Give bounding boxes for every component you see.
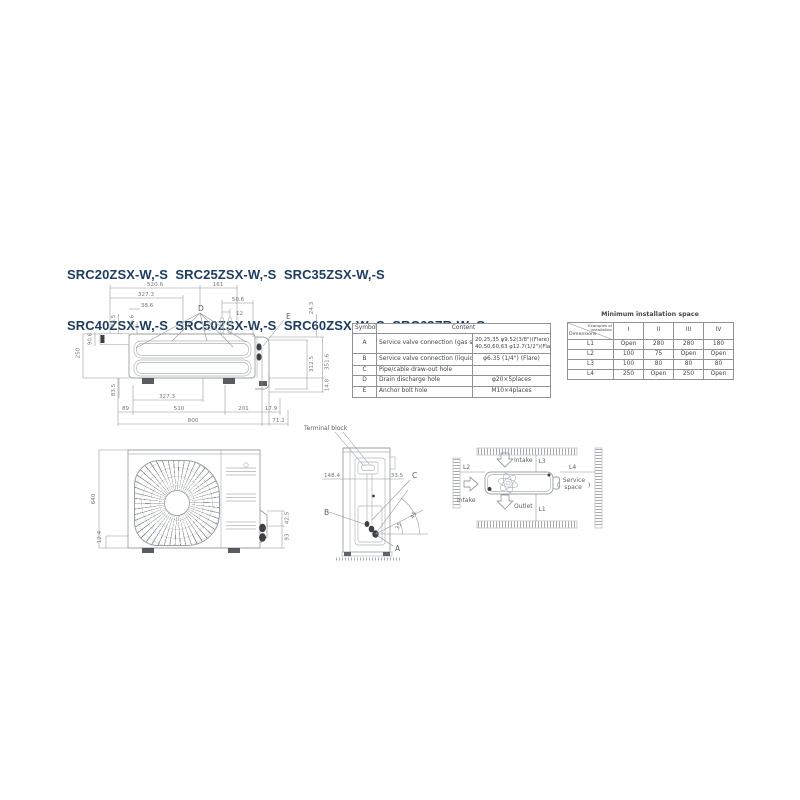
symbol-content-table: Symbol Content A Service valve connectio…: [352, 323, 551, 398]
dim-800: 800: [188, 418, 199, 424]
dim-640: 640: [91, 493, 97, 504]
dim-42-5: 42.5: [285, 511, 291, 524]
row-label: L1: [568, 340, 614, 350]
intake-left-arrow-icon: [464, 477, 478, 491]
value-cell: [473, 366, 551, 376]
symbol-cell: A: [353, 334, 377, 354]
symbol-header: Symbol: [353, 324, 377, 334]
symbol-cell: D: [353, 376, 377, 387]
spec-sheet-page: SRC20ZSX-W,-S SRC25ZSX-W,-S SRC35ZSX-W,-…: [0, 0, 800, 800]
dim-312-5: 312.5: [309, 356, 315, 372]
table-row: L3 100 80 80 80: [568, 360, 734, 370]
table-row: B Service valve connection (liquid side)…: [353, 354, 551, 366]
dim-33-5: 33.5: [391, 473, 404, 479]
content-header: Content: [377, 324, 551, 334]
dim-148-4: 148.4: [324, 473, 340, 479]
intake-top-label: Intake: [514, 457, 533, 464]
service-space-paren-close: ): [588, 482, 590, 489]
dim-351-6: 351.6: [325, 354, 331, 370]
value-cell: 80: [644, 360, 674, 370]
table-row: D Drain discharge hole φ20×5places: [353, 376, 551, 387]
intake-left-label: Intake: [457, 497, 476, 504]
value-cell: Open: [614, 340, 644, 350]
dim-250: 250: [76, 347, 82, 358]
value-cell: 80: [674, 360, 704, 370]
dim-angle-outer: 45: [410, 511, 419, 521]
row-label: L2: [568, 350, 614, 360]
drain-hole-label-d: D: [198, 304, 204, 313]
dim-161: 161: [213, 282, 224, 288]
value-cell: 80: [704, 360, 734, 370]
l3-label: L3: [539, 458, 546, 465]
value-cell: φ6.35 (1/4") (Flare): [473, 354, 551, 366]
dim-14-8: 14.8: [325, 378, 331, 391]
table-row: A Service valve connection (gas side) 20…: [353, 334, 551, 354]
column-header: IV: [704, 323, 734, 340]
dim-35-6: 35.6: [130, 314, 136, 327]
desc-cell: Service valve connection (liquid side): [377, 354, 473, 366]
installation-space-table: Examples of installation Dimensions I II…: [567, 322, 734, 380]
symbol-cell: B: [353, 354, 377, 366]
dim-12: 12: [236, 311, 243, 317]
dim-201: 201: [238, 406, 249, 412]
l1-label: L1: [539, 506, 546, 513]
table-row: L2 100 75 Open Open: [568, 350, 734, 360]
value-cell: 280: [644, 340, 674, 350]
value-cell: 100: [614, 350, 644, 360]
dim-89: 89: [122, 406, 130, 412]
column-header: I: [614, 323, 644, 340]
value-line2: 40,50,60,63 φ12.7(1/2")(Flare): [475, 344, 548, 350]
desc-cell: Drain discharge hole: [377, 376, 473, 387]
corner-dimensions-label: Dimensions: [569, 332, 596, 338]
value-cell: 250: [674, 370, 704, 380]
value-cell: Open: [644, 370, 674, 380]
outlet-arrow-icon: [497, 495, 513, 509]
table-row: L1 Open 280 280 180: [568, 340, 734, 350]
value-cell: Open: [674, 350, 704, 360]
dim-510: 510: [174, 406, 185, 412]
dim-17-9: 17.9: [265, 406, 278, 412]
l4-label: L4: [569, 464, 576, 471]
symbol-cell: E: [353, 387, 377, 398]
table-row: L4 250 Open 250 Open: [568, 370, 734, 380]
dim-327-3-top: 327.3: [138, 292, 154, 298]
value-cell: 280: [674, 340, 704, 350]
l2-label: L2: [463, 464, 470, 471]
dim-90-6: 90.6: [88, 332, 94, 345]
connection-label-c: C: [412, 471, 417, 480]
connection-label-a: A: [395, 544, 401, 553]
value-line1: 20,25,35 φ9.52(3/8")(Flare): [475, 337, 548, 343]
outlet-label: Outlet: [514, 503, 533, 510]
value-cell: 180: [704, 340, 734, 350]
dim-50-6: 50.6: [232, 297, 245, 303]
space-table-title: Minimum installation space: [567, 311, 733, 318]
table-row: C Pipe/cable draw-out hole: [353, 366, 551, 376]
unit-top-view-small: [485, 472, 560, 494]
value-cell: Open: [704, 350, 734, 360]
dim-93: 93: [285, 533, 291, 541]
desc-cell: Anchor bolt hole: [377, 387, 473, 398]
dim-83-5: 83.5: [111, 383, 117, 396]
value-cell: 75: [644, 350, 674, 360]
dim-43-5: 43.5: [111, 314, 117, 327]
terminal-block-label: Terminal block: [303, 425, 348, 432]
value-cell: 20,25,35 φ9.52(3/8")(Flare) 40,50,60,63 …: [473, 334, 551, 354]
table-row: E Anchor bolt hole M10×4places: [353, 387, 551, 398]
fan-hub: [164, 490, 190, 516]
value-cell: M10×4places: [473, 387, 551, 398]
row-label: L3: [568, 360, 614, 370]
value-cell: 250: [614, 370, 644, 380]
service-space-label-line2: space: [564, 484, 582, 491]
value-cell: φ20×5places: [473, 376, 551, 387]
service-space-paren-open: (: [557, 482, 559, 489]
symbol-cell: C: [353, 366, 377, 376]
anchor-bolt-label-e: E: [286, 312, 291, 321]
dim-520-6: 520.6: [147, 282, 163, 288]
service-space-label-line1: Service: [563, 477, 585, 484]
dim-327-3-bottom: 327.3: [159, 394, 175, 400]
value-cell: 100: [614, 360, 644, 370]
top-view-drawing: D E: [70, 278, 350, 436]
side-view-unit-outline: [335, 432, 400, 559]
side-view-drawing: Terminal block: [298, 420, 453, 568]
side-view-labels: 148.4 33.5 45 35 B C A: [324, 471, 419, 553]
desc-cell: Pipe/cable draw-out hole: [377, 366, 473, 376]
dim-24-3: 24.3: [309, 301, 315, 314]
dim-38-6: 38.6: [141, 303, 154, 309]
dim-71-2: 71.2: [272, 418, 284, 424]
row-label: L4: [568, 370, 614, 380]
column-header: II: [644, 323, 674, 340]
corner-header-cell: Examples of installation Dimensions: [568, 323, 614, 340]
installation-diagram: Intake L3 L2 L4 Intake Outlet L1 Service…: [450, 440, 655, 555]
value-cell: Open: [704, 370, 734, 380]
dim-12-4: 12.4: [97, 530, 103, 543]
desc-cell: Service valve connection (gas side): [377, 334, 473, 354]
fan-grille: [134, 460, 220, 546]
column-header: III: [674, 323, 704, 340]
connection-label-b: B: [324, 508, 329, 517]
